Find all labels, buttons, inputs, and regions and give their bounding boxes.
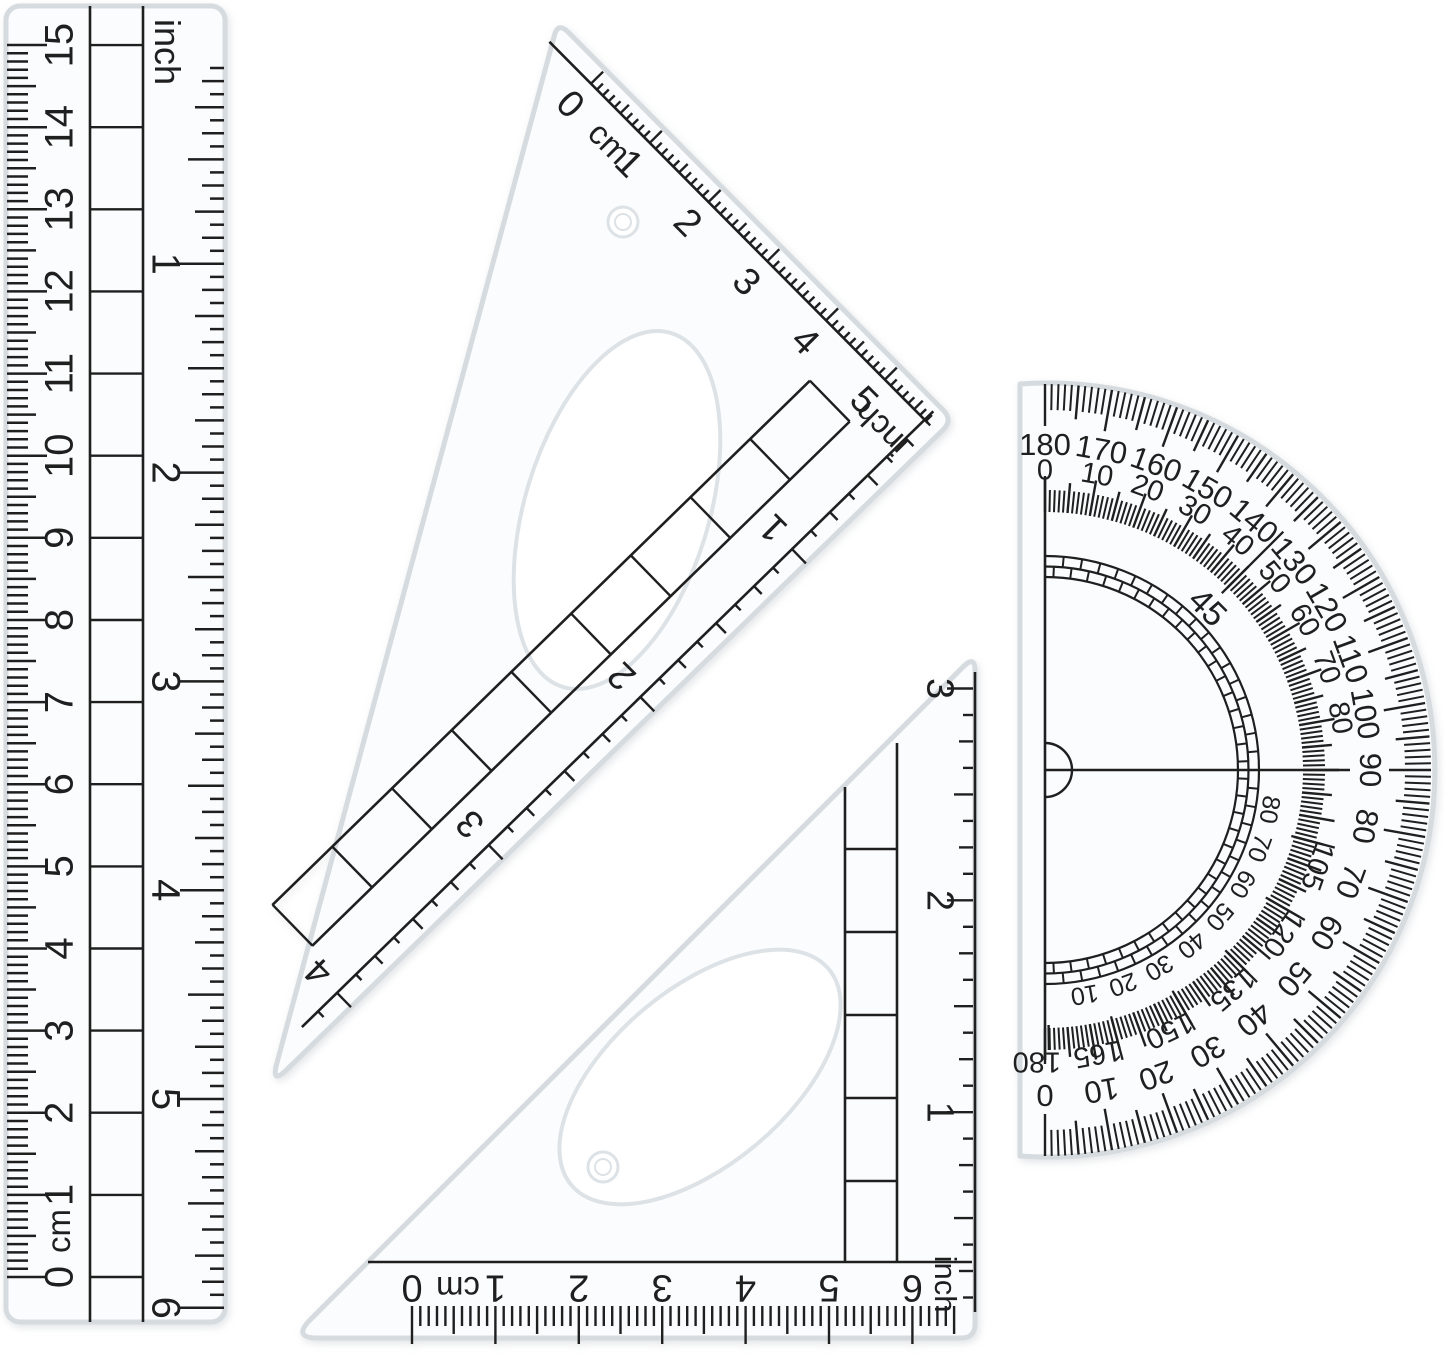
checker-divider — [1063, 557, 1064, 568]
geometry-set-scene: 0123456789101112131415cm123456inch0cm123… — [0, 0, 1445, 1355]
protractor-inner-number: 80 — [1321, 699, 1358, 736]
hang-hole — [608, 207, 638, 237]
checker-divider — [1053, 567, 1054, 578]
checker-divider — [1236, 795, 1247, 796]
ruler-inch-number: 6 — [144, 1297, 188, 1319]
ruler-cm-number: 15 — [37, 23, 81, 68]
cm-number: 2 — [568, 1266, 589, 1308]
inner-degree-tick — [1303, 779, 1325, 780]
ruler-inch-number: 3 — [144, 670, 188, 692]
ruler-inch-number: 4 — [144, 879, 188, 901]
outer-degree-tick — [1058, 1130, 1059, 1156]
ruler-cm-number: 11 — [37, 353, 81, 395]
ruler-inch-unit: inch — [147, 19, 188, 85]
ruler-cm-number: 5 — [37, 855, 81, 877]
outer-degree-tick — [1058, 384, 1059, 410]
ruler-cm-number: 1 — [37, 1184, 81, 1206]
ruler-cm-number: 2 — [37, 1102, 81, 1124]
box-band-divider — [273, 905, 313, 946]
checker-divider — [1236, 743, 1247, 744]
hang-hole — [588, 1152, 618, 1182]
cm-number: 1 — [485, 1266, 506, 1308]
outer-degree-tick — [1405, 750, 1431, 751]
ruler-inch-number: 2 — [144, 461, 188, 483]
ruler-cm-number: 13 — [37, 187, 81, 232]
ruler-cm-unit: cm — [40, 1209, 77, 1253]
ruler-cm-number: 4 — [37, 937, 81, 959]
checker-divider — [1063, 973, 1064, 984]
ruler: 0123456789101112131415cm123456inch — [6, 6, 225, 1322]
outer-degree-tick — [1064, 385, 1065, 411]
ruler-cm-number: 8 — [37, 609, 81, 631]
cm-number: 6 — [902, 1266, 923, 1308]
checker-divider — [1238, 778, 1249, 779]
protractor-outer-number: 90 — [1353, 753, 1388, 787]
protractor-inner-number: 180 — [1013, 1045, 1061, 1077]
inch-number: 1 — [918, 1102, 960, 1123]
inner-degree-tick — [1303, 784, 1325, 785]
outer-degree-tick — [1405, 783, 1431, 784]
inch-number: 3 — [918, 678, 960, 699]
ruler-cm-number: 14 — [37, 105, 81, 150]
protractor-outer-number: 10 — [1081, 1070, 1121, 1110]
cm-number: 4 — [735, 1266, 756, 1308]
protractor-outer-number: 0 — [1036, 1078, 1053, 1113]
cm-unit: cm — [436, 1270, 480, 1307]
protractor-inner-number: 10 — [1078, 456, 1115, 493]
outer-degree-tick — [1405, 757, 1431, 758]
ruler-cm-number: 6 — [37, 773, 81, 795]
checker-divider — [1248, 788, 1259, 789]
ruler-cm-number: 7 — [37, 691, 81, 713]
cm-number: 3 — [652, 1266, 673, 1308]
inner-degree-tick — [1054, 490, 1055, 512]
ruler-cm-number: 10 — [37, 433, 81, 478]
checker-divider — [1053, 963, 1054, 974]
checker-divider — [1070, 568, 1071, 579]
inner-degree-tick — [1303, 760, 1325, 761]
ruler-cm-number: 0 — [37, 1266, 81, 1288]
ruler-inch-number: 1 — [144, 253, 188, 275]
outer-degree-tick — [1405, 789, 1431, 790]
ruler-inch-number: 5 — [144, 1088, 188, 1110]
inner-degree-tick — [1303, 755, 1325, 756]
inner-degree-tick — [1059, 490, 1060, 512]
protractor: 1801701601501401301201101009080706050403… — [1013, 383, 1435, 1157]
cm-number: 5 — [818, 1266, 839, 1308]
outer-degree-tick — [1064, 1130, 1065, 1156]
product-photo-geometry-set: 0123456789101112131415cm123456inch0cm123… — [0, 0, 1445, 1355]
ruler-cm-number: 12 — [37, 269, 81, 314]
ruler-cm-number: 9 — [37, 527, 81, 549]
cm-number: 0 — [401, 1266, 422, 1308]
inch-number: 2 — [918, 890, 960, 911]
inch-unit: inch — [928, 1256, 963, 1313]
protractor-outer-number: 80 — [1345, 806, 1385, 846]
checker-divider — [1248, 751, 1259, 752]
checker-divider — [1070, 961, 1071, 972]
checker-divider — [1238, 761, 1249, 762]
ruler-cm-number: 3 — [37, 1019, 81, 1041]
